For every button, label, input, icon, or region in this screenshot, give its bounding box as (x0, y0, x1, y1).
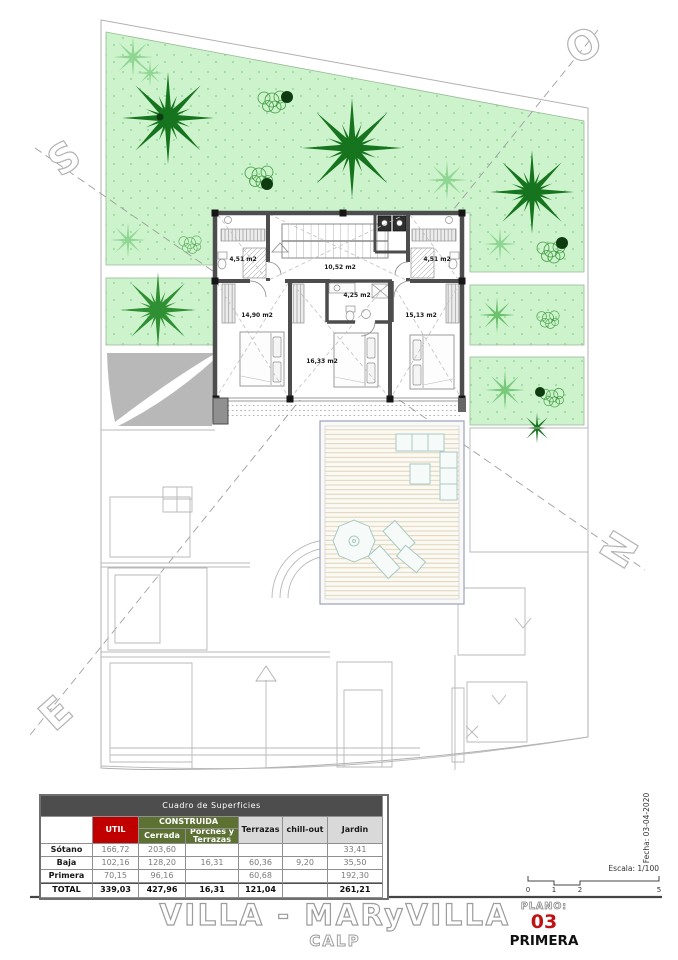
cell-baja-cerrada: 128,20 (139, 857, 186, 870)
col-header-porches: Porches y Terrazas (186, 829, 239, 844)
cell-sotano-terrazas (239, 844, 283, 857)
beds (240, 332, 454, 389)
scale-bar: Escala: 1/100 0 1 2 5 Fecha: 03-04-2020 (526, 793, 661, 894)
cell-sotano-porches (186, 844, 239, 857)
row-label-total: TOTAL (41, 883, 93, 898)
title-block: VILLA - MARyVILLA CALP PLANO: 03 PRIMERA (30, 897, 662, 950)
wall-stub (458, 398, 466, 412)
scale-text: Escala: 1/100 (608, 864, 659, 873)
room-label: 10,52 m2 (324, 264, 356, 271)
room-label: 15,13 m2 (405, 312, 437, 319)
room-label: 4,51 m2 (229, 256, 256, 263)
cell-sotano-util: 166,72 (93, 844, 139, 857)
compass-letter-n: N (592, 524, 649, 577)
cell-primera-cerrada: 96,16 (139, 870, 186, 883)
cell-total-terrazas: 121,04 (239, 883, 283, 898)
table-corner-cell (41, 817, 93, 844)
cell-baja-terrazas: 60,36 (239, 857, 283, 870)
row-label: Primera (41, 870, 93, 883)
compass-letter-s: S (40, 132, 90, 186)
cell-primera-jardin: 192,30 (328, 870, 383, 883)
cell-total-porches: 16,31 (186, 883, 239, 898)
col-header-jardin: Jardin (328, 817, 383, 844)
cell-primera-terrazas: 60,68 (239, 870, 283, 883)
plano-name: PRIMERA (510, 933, 579, 949)
col-header-cerrada: Cerrada (139, 829, 186, 844)
compass-letter-o: O (558, 18, 610, 75)
row-label: Baja (41, 857, 93, 870)
cell-sotano-chillout (283, 844, 328, 857)
scale-tick-label: 0 (526, 886, 530, 894)
cell-sotano-jardin: 33,41 (328, 844, 383, 857)
cell-total-jardin: 261,21 (328, 883, 383, 898)
cell-baja-jardin: 35,50 (328, 857, 383, 870)
surfaces-table: Cuadro de Superficies UTIL CONSTRUIDA Te… (39, 794, 389, 900)
plano-number: 03 (531, 911, 557, 933)
col-header-terrazas: Terrazas (239, 817, 283, 844)
cell-baja-util: 102,16 (93, 857, 139, 870)
cell-total-cerrada: 427,96 (139, 883, 186, 898)
cell-total-chillout (283, 883, 328, 898)
room-label: 4,51 m2 (423, 256, 450, 263)
cell-primera-porches (186, 870, 239, 883)
project-title: VILLA - MARyVILLA (159, 898, 510, 932)
cell-primera-util: 70,15 (93, 870, 139, 883)
cell-sotano-cerrada: 203,60 (139, 844, 186, 857)
compass-letter-e: E (31, 688, 82, 740)
col-header-util: UTIL (93, 817, 139, 844)
cell-baja-chillout: 9,20 (283, 857, 328, 870)
building-first-floor: 4,51 m2 10,52 m2 4,51 m2 14,90 m2 4,25 m… (212, 210, 467, 425)
pillar (213, 398, 228, 424)
room-label: 14,90 m2 (241, 312, 273, 319)
project-location: CALP (309, 932, 360, 950)
cell-total-util: 339,03 (93, 883, 139, 898)
plan-sheet: 4,51 m2 10,52 m2 4,51 m2 14,90 m2 4,25 m… (0, 0, 678, 960)
date-text: Fecha: 03-04-2020 (642, 793, 651, 864)
col-header-chillout: chill-out (283, 817, 328, 844)
cell-baja-porches: 16,31 (186, 857, 239, 870)
room-label: 16,33 m2 (306, 358, 338, 365)
room-label: 4,25 m2 (343, 292, 370, 299)
cell-primera-chillout (283, 870, 328, 883)
scale-tick-label: 1 (552, 886, 556, 894)
scale-tick-label: 2 (578, 886, 582, 894)
table-title: Cuadro de Superficies (41, 796, 383, 817)
stairs (272, 224, 388, 258)
col-header-construida: CONSTRUIDA (139, 817, 239, 829)
scale-tick-label: 5 (657, 886, 661, 894)
row-label: Sótano (41, 844, 93, 857)
